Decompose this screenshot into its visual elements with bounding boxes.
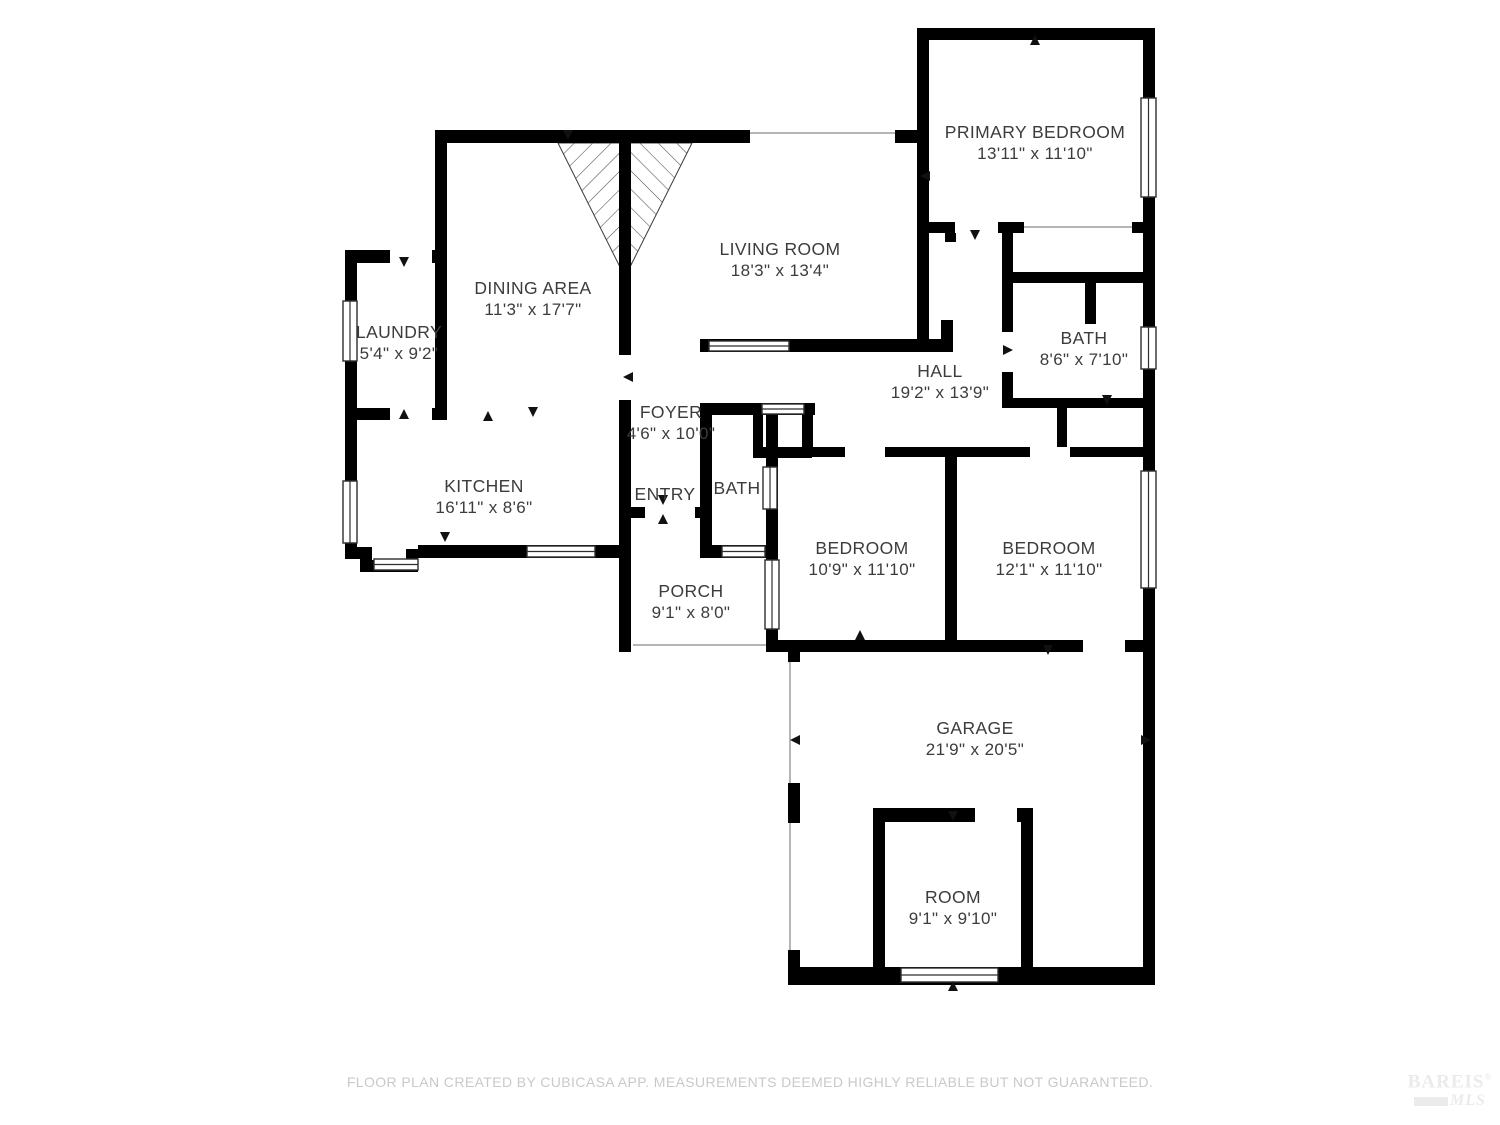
room-label-bedroom-2: BEDROOM 12'1" x 11'10" [995,537,1102,581]
logo-text-mls: MLS [1406,1092,1494,1110]
room-label-garage: GARAGE 21'9" x 20'5" [926,717,1024,761]
room-name: BATH [714,477,761,499]
bareis-mls-logo: BAREIS® MLS [1406,1068,1494,1110]
floorplan: PRIMARY BEDROOM 13'11" x 11'10" LIVING R… [0,0,1500,1125]
room-dims: 9'1" x 9'10" [909,908,998,930]
room-dims: 10'9" x 11'10" [808,559,915,581]
room-label-bath-center: BATH [714,477,761,499]
room-name: DINING AREA [474,277,591,299]
room-label-dining-area: DINING AREA 11'3" x 17'7" [474,277,591,321]
room-label-kitchen: KITCHEN 16'11" x 8'6" [435,475,532,519]
room-dims: 16'11" x 8'6" [435,497,532,519]
floorplan-svg [0,0,1500,1125]
room-name: BEDROOM [995,537,1102,559]
room-name: HALL [891,360,989,382]
room-dims: 8'6" x 7'10" [1040,349,1129,371]
room-label-porch: PORCH 9'1" x 8'0" [652,580,731,624]
room-dims: 18'3" x 13'4" [719,260,840,282]
room-label-laundry: LAUNDRY 5'4" x 9'2" [356,321,442,365]
room-name: LIVING ROOM [719,238,840,260]
footer-disclaimer: FLOOR PLAN CREATED BY CUBICASA APP. MEAS… [347,1074,1153,1090]
room-name: PORCH [652,580,731,602]
room-dims: 13'11" x 11'10" [945,143,1125,165]
room-dims: 12'1" x 11'10" [995,559,1102,581]
logo-bar [1414,1097,1448,1106]
room-name: FOYER [627,401,716,423]
room-name: BEDROOM [808,537,915,559]
room-name: GARAGE [926,717,1024,739]
room-label-room: ROOM 9'1" x 9'10" [909,886,998,930]
room-name: ROOM [909,886,998,908]
room-name: ENTRY [635,483,696,505]
room-dims: 19'2" x 13'9" [891,382,989,404]
room-label-bath-right: BATH 8'6" x 7'10" [1040,327,1129,371]
room-label-foyer: FOYER 4'6" x 10'0" [627,401,716,445]
logo-text-bareis: BAREIS® [1406,1068,1494,1091]
room-label-living-room: LIVING ROOM 18'3" x 13'4" [719,238,840,282]
room-label-primary-bedroom: PRIMARY BEDROOM 13'11" x 11'10" [945,121,1125,165]
room-dims: 21'9" x 20'5" [926,739,1024,761]
room-name: PRIMARY BEDROOM [945,121,1125,143]
room-name: LAUNDRY [356,321,442,343]
room-dims: 9'1" x 8'0" [652,602,731,624]
room-name: BATH [1040,327,1129,349]
registered-mark-icon: ® [1485,1072,1493,1082]
room-dims: 11'3" x 17'7" [474,299,591,321]
room-dims: 4'6" x 10'0" [627,423,716,445]
room-label-bedroom-1: BEDROOM 10'9" x 11'10" [808,537,915,581]
room-label-hall: HALL 19'2" x 13'9" [891,360,989,404]
room-dims: 5'4" x 9'2" [356,343,442,365]
room-label-entry: ENTRY [635,483,696,505]
room-name: KITCHEN [435,475,532,497]
